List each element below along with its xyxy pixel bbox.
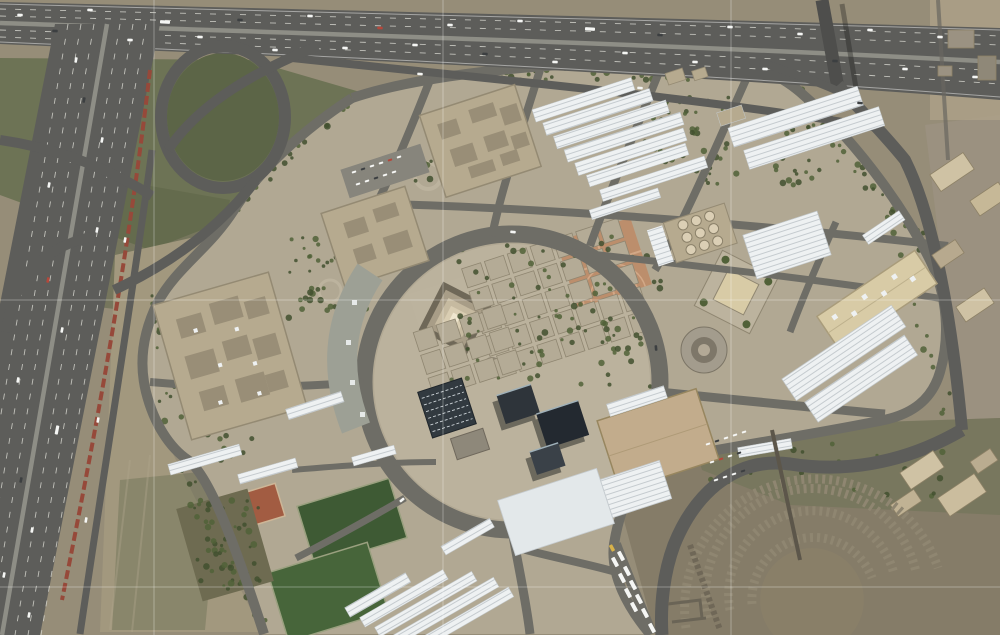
satellite-map[interactable] bbox=[0, 0, 1000, 635]
circular-building bbox=[681, 327, 727, 373]
satellite-canvas bbox=[0, 0, 1000, 635]
